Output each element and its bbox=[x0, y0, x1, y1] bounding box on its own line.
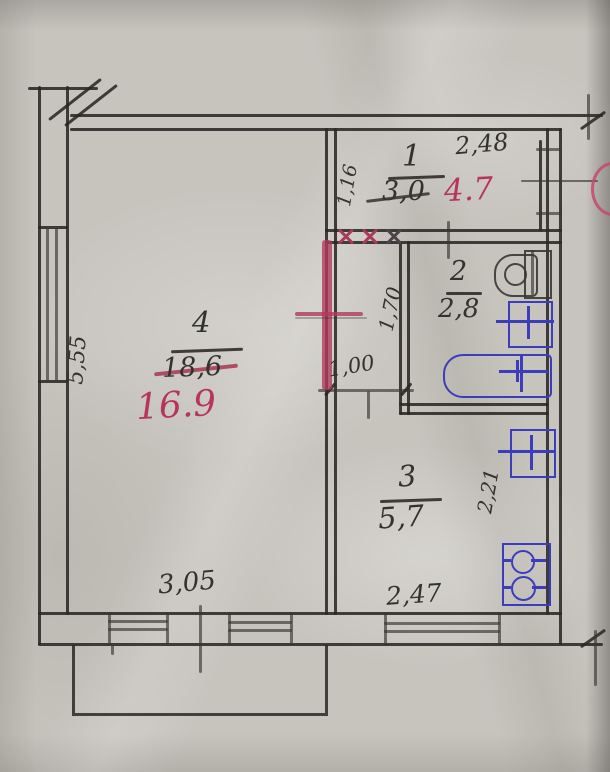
washbasin-icon bbox=[508, 301, 553, 348]
red-circle-annotation bbox=[591, 162, 610, 216]
window-a-glazing-1 bbox=[108, 620, 168, 623]
stove-tick-4 bbox=[532, 586, 546, 589]
room1-bottom-wall-upper bbox=[325, 229, 562, 232]
hall-dimension-line bbox=[318, 389, 414, 392]
shaft-rung-top bbox=[536, 148, 562, 151]
room3-area: 5,7 bbox=[377, 501, 425, 533]
room2-area: 2,8 bbox=[438, 296, 479, 322]
room1-depth-dimension: 1,16 bbox=[333, 154, 362, 216]
room1-width-dimension: 2,48 bbox=[454, 130, 509, 159]
bathtub-end-line bbox=[520, 356, 523, 392]
dimension-stub-top-left bbox=[28, 87, 98, 90]
wall-left-outer-line bbox=[38, 86, 41, 645]
wall-top-outer-line bbox=[70, 114, 603, 117]
leader-line-right bbox=[521, 180, 598, 182]
window-c-glazing-1 bbox=[384, 622, 500, 625]
kitchen-depth-dimension: 2,21 bbox=[473, 460, 503, 523]
room1-bottom-wall-lower bbox=[325, 241, 562, 244]
bathtub-faucet-cross-h bbox=[499, 370, 548, 373]
shaft-wall-line bbox=[539, 140, 542, 231]
floor-plan-scan: 1 2,48 1,16 3,0 4.7 2 2,8 1,70 1,00 3 5,… bbox=[0, 0, 610, 772]
hall-dimension-stub bbox=[367, 391, 370, 419]
room4-depth-dimension: 5,55 bbox=[65, 323, 92, 396]
room3-number: 3 bbox=[397, 461, 417, 491]
room4-area-new: 16.9 bbox=[135, 386, 217, 426]
red-opening-cross-line bbox=[295, 312, 363, 316]
window-a-glazing-2 bbox=[108, 628, 168, 631]
kitchen-top-wall-lower bbox=[399, 412, 549, 415]
pencil-cross-line bbox=[295, 317, 367, 319]
stove-tick-3 bbox=[503, 586, 511, 589]
extension-line-bottom-right bbox=[594, 630, 597, 686]
window-c-left-jamb bbox=[384, 612, 387, 646]
stove-tick-1 bbox=[503, 559, 511, 562]
bathtub-icon bbox=[443, 354, 552, 398]
balcony-outline bbox=[72, 645, 328, 716]
window-c-right-jamb bbox=[498, 612, 501, 646]
washbasin-cross-v bbox=[527, 306, 530, 339]
room1-number: 1 bbox=[402, 142, 421, 172]
washbasin-cross-h bbox=[496, 320, 554, 323]
window-b-glazing-1 bbox=[228, 621, 292, 624]
window-c-glazing-2 bbox=[384, 630, 500, 633]
kitchen-width-dimension: 2,47 bbox=[385, 580, 442, 609]
kitchen-sink-cross-v bbox=[530, 435, 533, 470]
stove-burner-2 bbox=[511, 576, 536, 601]
stove-burner-1 bbox=[511, 550, 535, 574]
kitchen-sink-icon bbox=[510, 429, 556, 478]
extension-tick-room1 bbox=[447, 221, 450, 259]
toilet-tank bbox=[524, 250, 552, 299]
hall-width-dimension: 1,00 bbox=[327, 352, 376, 380]
kitchen-sink-cross-h bbox=[498, 450, 556, 453]
wall-bottom-inner-line bbox=[38, 612, 562, 615]
room4-window-dimension: 3,05 bbox=[157, 568, 217, 599]
kitchen-top-wall-upper bbox=[399, 403, 549, 406]
room2-number: 2 bbox=[450, 258, 467, 285]
room4-area-old: 18,6 bbox=[162, 353, 223, 382]
window-b-glazing-2 bbox=[228, 629, 292, 632]
left-window-glazing-2 bbox=[55, 228, 58, 381]
room1-area-new: 4.7 bbox=[443, 174, 494, 208]
room1-area-old: 3,0 bbox=[382, 178, 425, 205]
room4-number: 4 bbox=[192, 308, 210, 337]
break-mark-slash-2 bbox=[64, 84, 118, 127]
left-window-cap-top bbox=[38, 226, 68, 229]
toilet-tank-line bbox=[531, 250, 534, 295]
left-window-glazing-1 bbox=[46, 228, 49, 381]
shaft-rung-bottom bbox=[536, 212, 562, 215]
wall-right-outer-line bbox=[559, 128, 562, 645]
extension-line-top-right bbox=[587, 94, 590, 140]
bathtub-faucet-cross-v bbox=[516, 360, 519, 382]
stove-tick-2 bbox=[531, 559, 546, 562]
